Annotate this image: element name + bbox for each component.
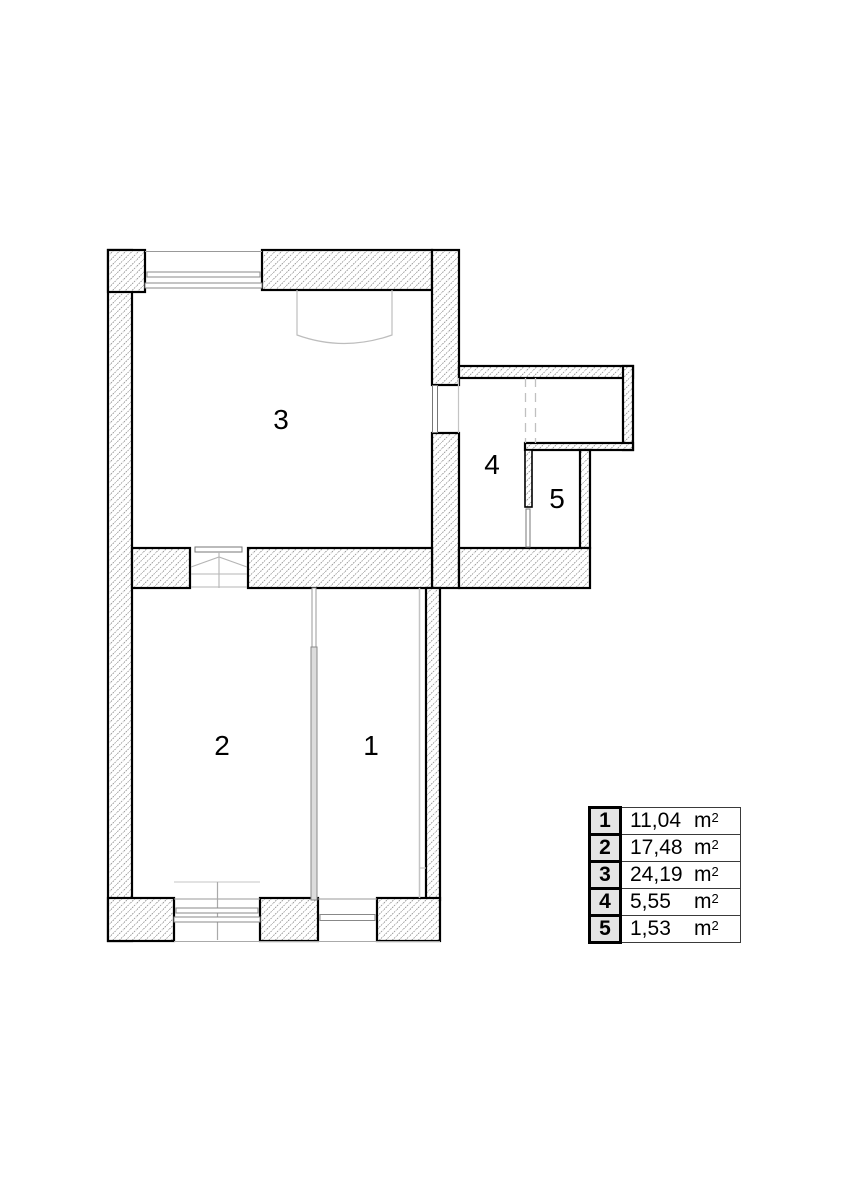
window-room3-top [145, 252, 262, 289]
legend-room-number: 3 [590, 862, 621, 889]
partition-room1-room2 [311, 647, 317, 900]
legend-room-area: 11,04m2 [621, 808, 741, 835]
wall-left-top-block [108, 250, 145, 292]
legend-room-area: 17,48m2 [621, 835, 741, 862]
legend-room-area: 5,55m2 [621, 889, 741, 916]
legend-room-number: 5 [590, 916, 621, 943]
wall-right-mid [432, 433, 459, 588]
room-label-5: 5 [549, 485, 565, 513]
window-room1-bottom [318, 899, 377, 921]
wall-right-lower [426, 588, 440, 900]
room-label-2: 2 [214, 732, 230, 760]
room-label-1: 1 [363, 732, 379, 760]
wall-middle-center [248, 548, 432, 588]
legend-row: 4 5,55m2 [590, 889, 741, 916]
partition-room1-room2-opening [312, 588, 316, 647]
legend-room-area: 1,53m2 [621, 916, 741, 943]
legend-row: 3 24,19m2 [590, 862, 741, 889]
room-label-4: 4 [484, 451, 500, 479]
wall-top [262, 250, 432, 290]
door-room3-room4 [433, 378, 459, 433]
window-room2-bottom [174, 882, 260, 940]
door-room4-room5 [526, 509, 530, 547]
wall-left [108, 250, 132, 941]
wall-corridor-right [623, 366, 633, 450]
wall-corridor-top [459, 366, 633, 378]
legend-row: 2 17,48m2 [590, 835, 741, 862]
wall-middle-left [132, 548, 190, 588]
floorplan-page: 1 2 3 4 5 1 11,04m2 2 17,48m2 3 24,19m2 … [0, 0, 844, 1190]
door-room3-room2 [191, 547, 247, 588]
wall-right-upper [432, 250, 459, 385]
dashed-beam-corridor [526, 378, 536, 443]
area-legend-table: 1 11,04m2 2 17,48m2 3 24,19m2 4 5,55m2 5… [588, 806, 741, 944]
legend-room-area: 24,19m2 [621, 862, 741, 889]
alcove-arc-room3 [297, 290, 392, 344]
wall-left-bottom-block [108, 898, 174, 941]
wall-bottom-right-block [377, 898, 440, 941]
partition-room4-room5 [525, 450, 532, 507]
floorplan-drawing [0, 0, 844, 1190]
room-label-3: 3 [273, 406, 289, 434]
legend-room-number: 1 [590, 808, 621, 835]
wall-middle-right [459, 548, 590, 588]
legend-room-number: 2 [590, 835, 621, 862]
legend-row: 5 1,53m2 [590, 916, 741, 943]
wall-room5-right [580, 450, 590, 548]
legend-room-number: 4 [590, 889, 621, 916]
wall-bottom-pier [260, 898, 318, 941]
legend-row: 1 11,04m2 [590, 808, 741, 835]
